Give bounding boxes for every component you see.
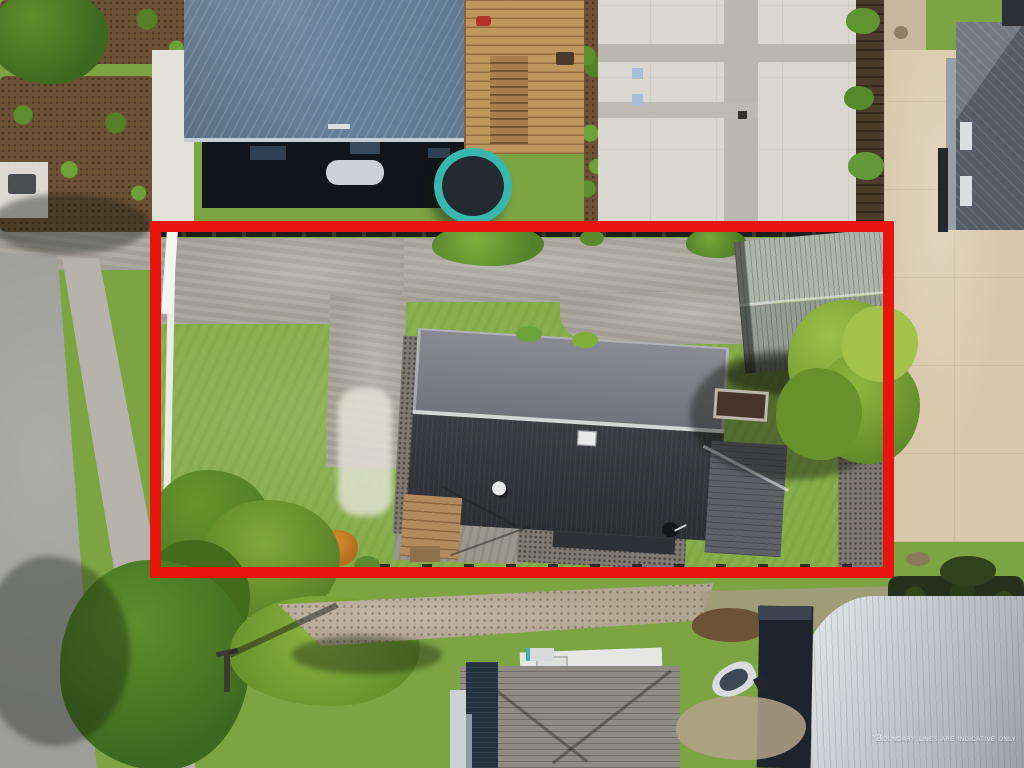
fence-bush bbox=[848, 152, 884, 180]
power-pole bbox=[224, 652, 230, 692]
wood-pile bbox=[692, 608, 768, 642]
property-boundary-outline bbox=[150, 221, 894, 578]
hedge-tree bbox=[940, 556, 996, 586]
fence-bush bbox=[844, 86, 874, 110]
dark-structure bbox=[1002, 0, 1024, 26]
path-spot bbox=[894, 26, 908, 39]
garden-object bbox=[8, 174, 36, 194]
teal-white-object bbox=[526, 648, 554, 661]
window-glint bbox=[250, 146, 286, 160]
corner-tree bbox=[0, 0, 108, 84]
skylight bbox=[960, 122, 972, 150]
white-spa-object bbox=[326, 160, 384, 185]
driveway-grey-band bbox=[584, 44, 862, 62]
garden-strip bbox=[584, 0, 598, 222]
dirt-patch bbox=[676, 696, 806, 760]
boundary-disclaimer-text: *Boundary lines are indicative only bbox=[820, 733, 1016, 751]
drain-grate bbox=[738, 111, 747, 119]
fence-bush bbox=[846, 8, 880, 34]
grass-patch bbox=[906, 552, 930, 566]
outboard-motor bbox=[753, 674, 771, 694]
red-deck-object bbox=[476, 16, 491, 26]
deck-furniture bbox=[556, 52, 574, 65]
blue-paver bbox=[632, 94, 643, 105]
trampoline bbox=[434, 148, 512, 224]
aerial-photo: *Boundary lines are indicative only bbox=[0, 0, 1024, 768]
neighbour-house-blue-roof bbox=[184, 0, 482, 142]
deck-stairs bbox=[490, 56, 528, 144]
blue-paver bbox=[632, 68, 643, 79]
skylight bbox=[960, 176, 972, 206]
driveway-grey-band bbox=[584, 102, 758, 118]
tree-shadow bbox=[292, 636, 442, 674]
shed-roof-edge bbox=[758, 606, 812, 620]
roof-marking bbox=[328, 124, 350, 129]
window-glint bbox=[350, 142, 380, 154]
white-roof-edge bbox=[450, 690, 466, 768]
house-base-shadow bbox=[938, 148, 948, 232]
